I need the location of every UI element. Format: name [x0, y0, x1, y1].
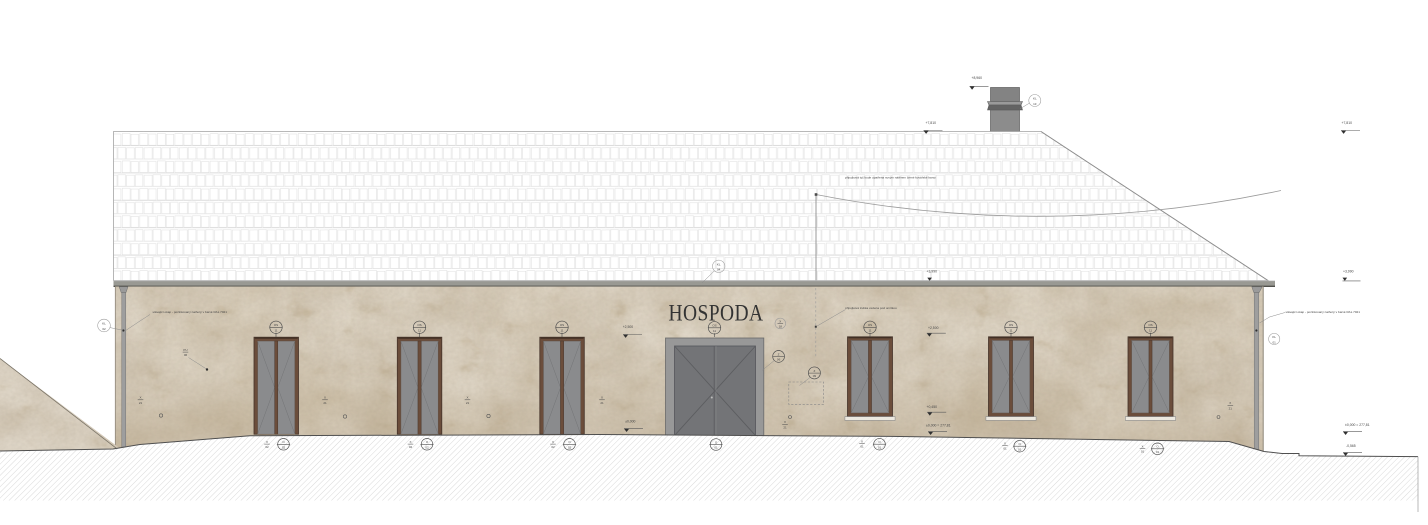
- svg-text:06: 06: [777, 358, 781, 362]
- svg-text:OS: OS: [560, 323, 564, 327]
- svg-text:X: X: [1141, 444, 1143, 448]
- svg-text:01: 01: [1018, 447, 1022, 451]
- svg-text:OS: OS: [1148, 323, 1152, 327]
- svg-text:±0,000 = 277,81: ±0,000 = 277,81: [1345, 423, 1370, 427]
- svg-text:KL: KL: [102, 322, 106, 326]
- svg-text:04: 04: [717, 268, 721, 272]
- svg-text:01: 01: [1273, 340, 1277, 344]
- svg-text:02: 02: [265, 445, 269, 449]
- svg-text:09: 09: [813, 374, 817, 378]
- svg-text:01: 01: [714, 446, 718, 450]
- svg-text:OS: OS: [417, 323, 421, 327]
- svg-text:±0,000 = 277,81: ±0,000 = 277,81: [926, 424, 951, 428]
- svg-text:KL: KL: [1272, 335, 1276, 339]
- svg-text:+7,810: +7,810: [1342, 121, 1353, 125]
- svg-text:02: 02: [409, 445, 413, 449]
- svg-text:21: 21: [1229, 406, 1233, 410]
- svg-text:21: 21: [139, 401, 143, 405]
- svg-text:PU: PU: [183, 348, 187, 352]
- svg-text:Z: Z: [778, 353, 780, 357]
- svg-text:X: X: [861, 439, 863, 443]
- svg-text:X: X: [409, 440, 411, 444]
- svg-text:11: 11: [418, 328, 421, 332]
- svg-text:-0,565: -0,565: [1346, 444, 1356, 448]
- svg-text:21: 21: [466, 401, 470, 405]
- svg-text:11: 11: [868, 328, 871, 332]
- svg-text:13: 13: [1033, 102, 1037, 106]
- svg-text:X: X: [266, 440, 268, 444]
- svg-text:+7,810: +7,810: [926, 121, 937, 125]
- svg-text:02: 02: [425, 445, 429, 449]
- svg-text:11: 11: [1009, 328, 1012, 332]
- svg-text:připojková trubka vedena pod o: připojková trubka vedena pod omítkou: [845, 306, 897, 310]
- svg-text:KL: KL: [717, 262, 721, 266]
- svg-text:stávající okap - pozinkovaný n: stávající okap - pozinkovaný natřený v b…: [153, 310, 228, 314]
- svg-text:+8,960: +8,960: [972, 76, 983, 80]
- svg-text:01: 01: [860, 445, 864, 449]
- svg-text:18: 18: [779, 325, 783, 329]
- svg-text:02: 02: [102, 327, 106, 331]
- svg-text:X: X: [552, 440, 554, 444]
- svg-text:02: 02: [568, 445, 572, 449]
- svg-text:01: 01: [1156, 450, 1160, 454]
- svg-text:01: 01: [878, 445, 882, 449]
- svg-text:X: X: [139, 396, 141, 400]
- svg-text:stávající okap - pozinkovaný n: stávající okap - pozinkovaný natřený v b…: [1286, 310, 1361, 314]
- svg-text:X: X: [466, 396, 468, 400]
- svg-text:11: 11: [560, 328, 563, 332]
- svg-text:HOSPODA: HOSPODA: [669, 300, 764, 326]
- svg-text:OS: OS: [712, 324, 716, 328]
- svg-text:X: X: [601, 396, 603, 400]
- svg-text:X: X: [784, 420, 786, 424]
- svg-text:X: X: [324, 396, 326, 400]
- svg-text:připojková tyč bude opatřena n: připojková tyč bude opatřena novým nátěr…: [845, 176, 936, 180]
- svg-text:±0,000: ±0,000: [625, 419, 635, 423]
- svg-text:OS: OS: [868, 323, 872, 327]
- svg-text:01: 01: [1141, 450, 1145, 454]
- svg-text:Z: Z: [813, 369, 815, 373]
- svg-text:X: X: [779, 319, 781, 323]
- svg-text:OS: OS: [1009, 323, 1013, 327]
- svg-text:21: 21: [323, 401, 327, 405]
- svg-text:02: 02: [551, 445, 555, 449]
- svg-text:21: 21: [600, 401, 604, 405]
- svg-text:06: 06: [184, 353, 188, 357]
- svg-text:+2,500: +2,500: [623, 325, 634, 329]
- svg-text:01: 01: [1003, 447, 1007, 451]
- svg-text:X: X: [1229, 401, 1231, 405]
- svg-text:+3,990: +3,990: [1343, 270, 1354, 274]
- svg-text:+0,450: +0,450: [927, 405, 938, 409]
- svg-text:KL: KL: [1033, 97, 1037, 101]
- svg-text:+3,990: +3,990: [927, 270, 938, 274]
- svg-text:11: 11: [1149, 328, 1152, 332]
- svg-text:OS: OS: [274, 323, 278, 327]
- svg-text:21: 21: [783, 425, 787, 429]
- svg-text:X: X: [1004, 441, 1006, 445]
- svg-text:02: 02: [282, 445, 286, 449]
- svg-text:11: 11: [713, 329, 716, 333]
- svg-text:11: 11: [274, 328, 277, 332]
- svg-text:+2,500: +2,500: [928, 326, 939, 330]
